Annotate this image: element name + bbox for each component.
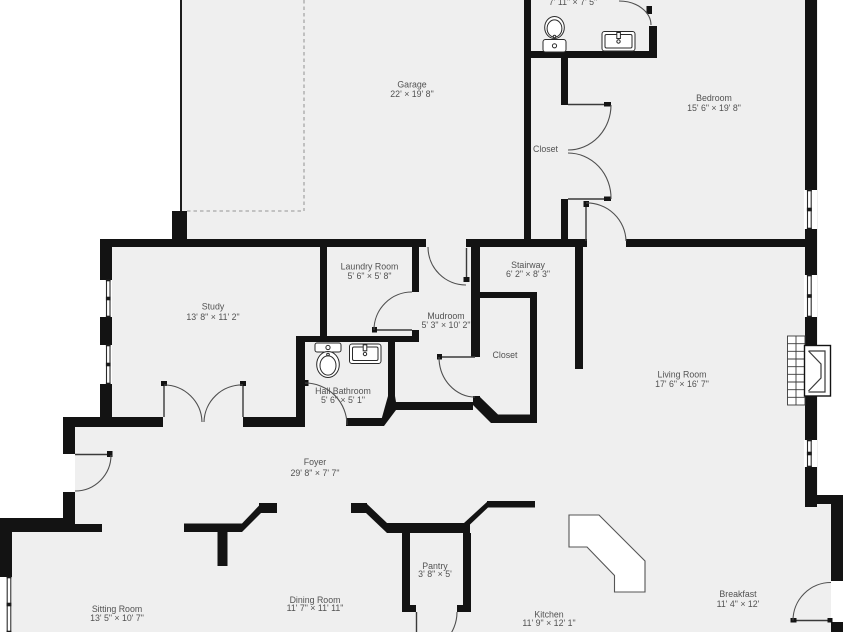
svg-text:3' 8" × 5': 3' 8" × 5' [418, 569, 452, 579]
svg-text:Bedroom: Bedroom [696, 93, 732, 103]
svg-text:Breakfast: Breakfast [719, 589, 757, 599]
svg-text:Garage: Garage [397, 80, 426, 90]
svg-text:17' 6" × 16' 7": 17' 6" × 16' 7" [655, 379, 709, 389]
svg-text:Foyer: Foyer [304, 457, 327, 467]
svg-text:5' 6" × 5' 8": 5' 6" × 5' 8" [347, 271, 391, 281]
svg-text:29' 8" × 7' 7": 29' 8" × 7' 7" [291, 468, 340, 478]
svg-text:11' 7" × 11' 11": 11' 7" × 11' 11" [287, 603, 344, 613]
svg-text:15' 6" × 19' 8": 15' 6" × 19' 8" [687, 103, 741, 113]
svg-text:7' 11" × 7' 5": 7' 11" × 7' 5" [549, 0, 597, 7]
svg-text:Living Room: Living Room [658, 370, 707, 380]
svg-text:Closet: Closet [493, 350, 518, 360]
svg-text:11' 9" × 12' 1": 11' 9" × 12' 1" [522, 618, 575, 628]
svg-text:22' × 19' 8": 22' × 19' 8" [390, 89, 433, 99]
svg-text:11' 4" × 12': 11' 4" × 12' [717, 599, 760, 609]
svg-text:Laundry Room: Laundry Room [341, 262, 399, 272]
svg-text:5' 6" × 5' 1": 5' 6" × 5' 1" [321, 395, 365, 405]
svg-text:13' 5" × 10' 7": 13' 5" × 10' 7" [90, 613, 144, 623]
svg-text:Study: Study [202, 302, 225, 312]
svg-text:Closet: Closet [533, 144, 558, 154]
svg-text:6' 2" × 8' 3": 6' 2" × 8' 3" [506, 269, 550, 279]
svg-text:13' 8" × 11' 2": 13' 8" × 11' 2" [186, 312, 239, 322]
svg-text:5' 3" × 10' 2": 5' 3" × 10' 2" [422, 320, 471, 330]
